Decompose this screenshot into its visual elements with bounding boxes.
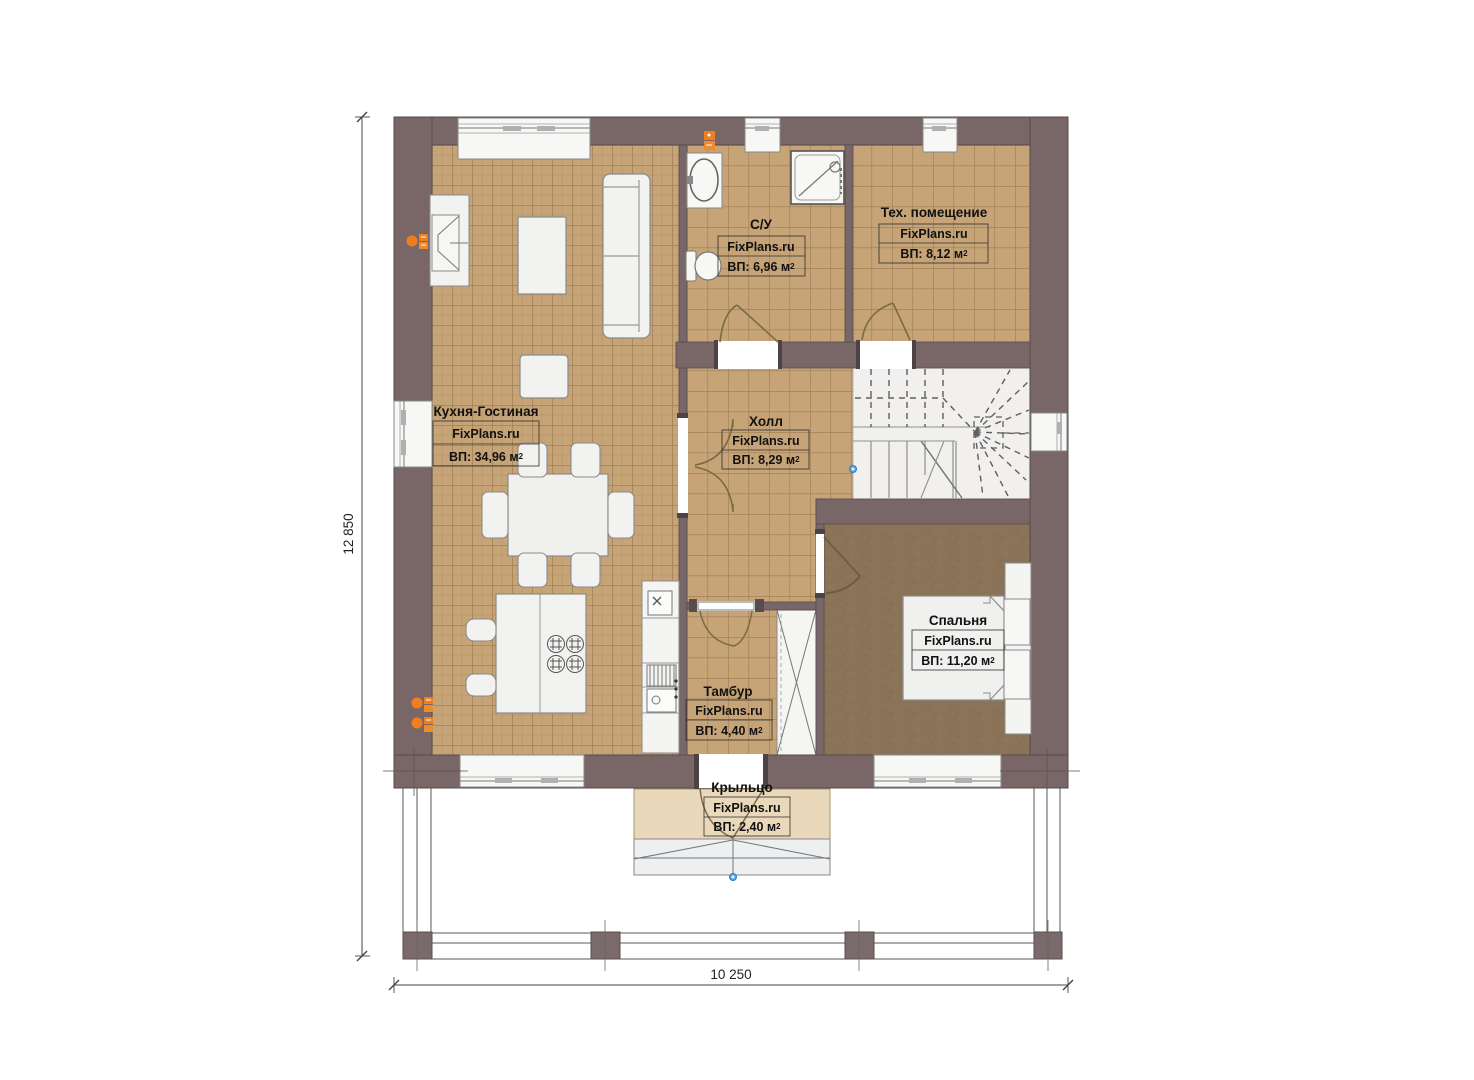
svg-text:С/У: С/У bbox=[750, 217, 773, 232]
svg-text:Холл: Холл bbox=[749, 414, 783, 429]
svg-text:10 250: 10 250 bbox=[710, 967, 751, 982]
svg-text:Спальня: Спальня bbox=[929, 613, 987, 628]
svg-text:ВП: 8,12 м2: ВП: 8,12 м2 bbox=[900, 247, 968, 261]
svg-text:ВП: 8,29 м2: ВП: 8,29 м2 bbox=[732, 453, 800, 467]
svg-text:Тех. помещение: Тех. помещение bbox=[881, 205, 988, 220]
svg-text:ВП: 4,40 м2: ВП: 4,40 м2 bbox=[695, 724, 763, 738]
svg-text:FixPlans.ru: FixPlans.ru bbox=[727, 240, 794, 254]
svg-text:ВП: 11,20 м2: ВП: 11,20 м2 bbox=[921, 654, 995, 668]
svg-text:12 850: 12 850 bbox=[341, 513, 356, 554]
svg-text:ВП: 6,96 м2: ВП: 6,96 м2 bbox=[727, 260, 795, 274]
svg-text:FixPlans.ru: FixPlans.ru bbox=[924, 634, 991, 648]
svg-text:FixPlans.ru: FixPlans.ru bbox=[695, 704, 762, 718]
svg-text:FixPlans.ru: FixPlans.ru bbox=[732, 434, 799, 448]
svg-text:ВП: 34,96 м2: ВП: 34,96 м2 bbox=[449, 450, 524, 464]
svg-text:Тамбур: Тамбур bbox=[704, 684, 753, 699]
svg-text:FixPlans.ru: FixPlans.ru bbox=[713, 801, 780, 815]
svg-text:FixPlans.ru: FixPlans.ru bbox=[900, 227, 967, 241]
svg-text:Кухня-Гостиная: Кухня-Гостиная bbox=[434, 404, 539, 419]
svg-text:ВП: 2,40 м2: ВП: 2,40 м2 bbox=[713, 820, 781, 834]
svg-text:Крыльцо: Крыльцо bbox=[711, 780, 772, 795]
svg-text:FixPlans.ru: FixPlans.ru bbox=[452, 427, 519, 441]
